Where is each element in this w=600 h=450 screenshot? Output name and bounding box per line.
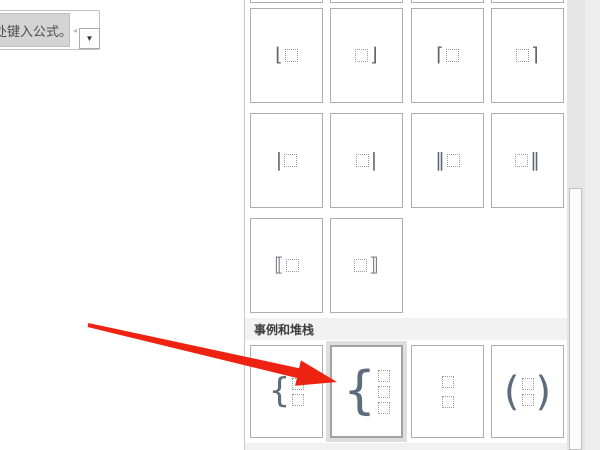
right-ceiling-glyph: ⌉ bbox=[531, 46, 538, 65]
right-paren-glyph: ) bbox=[536, 374, 552, 410]
placeholder-stack bbox=[442, 376, 454, 408]
placeholder-box bbox=[292, 378, 304, 390]
placeholder-box bbox=[522, 378, 534, 390]
placeholder-box bbox=[442, 376, 454, 388]
right-bar-glyph: | bbox=[371, 151, 377, 170]
placeholder-stack bbox=[378, 370, 390, 414]
placeholder-box bbox=[522, 394, 534, 406]
placeholder-box bbox=[356, 154, 369, 167]
cell-right-white-square-bracket[interactable]: ⟧ bbox=[330, 218, 403, 313]
equation-placeholder[interactable]: 在此处键入公式。 bbox=[0, 13, 70, 47]
placeholder-box bbox=[516, 49, 529, 62]
cell-left-floor-bracket[interactable]: ⌊ bbox=[250, 8, 323, 103]
right-floor-glyph: ⌋ bbox=[370, 46, 377, 65]
placeholder-box bbox=[378, 402, 390, 414]
cell-right-double-bar[interactable]: ‖ bbox=[491, 113, 564, 208]
placeholder-box bbox=[447, 154, 460, 167]
cell-right-vertical-bar[interactable]: | bbox=[330, 113, 403, 208]
placeholder-box bbox=[355, 49, 368, 62]
cell-left-vertical-bar[interactable]: | bbox=[250, 113, 323, 208]
left-ceiling-glyph: ⌈ bbox=[436, 46, 443, 65]
content-control-edge-icon: ◂ bbox=[71, 26, 79, 36]
chevron-down-icon: ▼ bbox=[86, 35, 94, 43]
placeholder-stack bbox=[292, 378, 304, 406]
partial-gallery-cell[interactable] bbox=[330, 0, 403, 3]
equation-placeholder-text: 在此处键入公式。 bbox=[0, 21, 70, 40]
left-paren-glyph: ( bbox=[504, 374, 520, 410]
window-edge-strip bbox=[585, 0, 600, 450]
placeholder-box bbox=[354, 259, 367, 272]
placeholder-box bbox=[286, 259, 299, 272]
placeholder-box bbox=[292, 394, 304, 406]
placeholder-box bbox=[378, 386, 390, 398]
cell-binomial-coefficient[interactable]: ( ) bbox=[491, 345, 564, 438]
cell-stack-object[interactable] bbox=[411, 345, 484, 438]
placeholder-box bbox=[285, 49, 298, 62]
partial-section-header bbox=[245, 443, 567, 450]
section-header-label: 事例和堆栈 bbox=[254, 321, 314, 338]
right-white-square-glyph: ⟧ bbox=[369, 256, 378, 275]
left-double-bar-glyph: ‖ bbox=[435, 151, 445, 170]
equation-dropdown-button[interactable]: ▼ bbox=[79, 28, 100, 49]
right-double-bar-glyph: ‖ bbox=[530, 151, 540, 170]
placeholder-stack bbox=[522, 378, 534, 406]
section-header-cases-and-stacks: 事例和堆栈 bbox=[245, 318, 567, 340]
partial-gallery-cell[interactable] bbox=[250, 0, 323, 3]
partial-gallery-cell[interactable] bbox=[491, 0, 564, 3]
left-floor-glyph: ⌊ bbox=[275, 46, 282, 65]
gallery-scrollbar-thumb[interactable] bbox=[569, 188, 582, 450]
cell-left-white-square-bracket[interactable]: ⟦ bbox=[250, 218, 323, 313]
cell-right-ceiling-bracket[interactable]: ⌉ bbox=[491, 8, 564, 103]
placeholder-box bbox=[446, 49, 459, 62]
left-white-square-glyph: ⟦ bbox=[274, 256, 283, 275]
placeholder-box bbox=[378, 370, 390, 382]
cell-cases-three-conditions[interactable]: { bbox=[330, 345, 403, 438]
left-bar-glyph: | bbox=[276, 151, 282, 170]
left-brace-glyph: { bbox=[269, 376, 291, 407]
cell-right-floor-bracket[interactable]: ⌋ bbox=[330, 8, 403, 103]
panel-left-border bbox=[244, 0, 245, 450]
left-brace-glyph: { bbox=[343, 368, 376, 415]
partial-gallery-cell[interactable] bbox=[411, 0, 484, 3]
placeholder-box bbox=[284, 154, 297, 167]
placeholder-box bbox=[515, 154, 528, 167]
placeholder-box bbox=[442, 396, 454, 408]
cell-cases-two-conditions[interactable]: { bbox=[250, 345, 323, 438]
cell-left-ceiling-bracket[interactable]: ⌈ bbox=[411, 8, 484, 103]
cell-left-double-bar[interactable]: ‖ bbox=[411, 113, 484, 208]
